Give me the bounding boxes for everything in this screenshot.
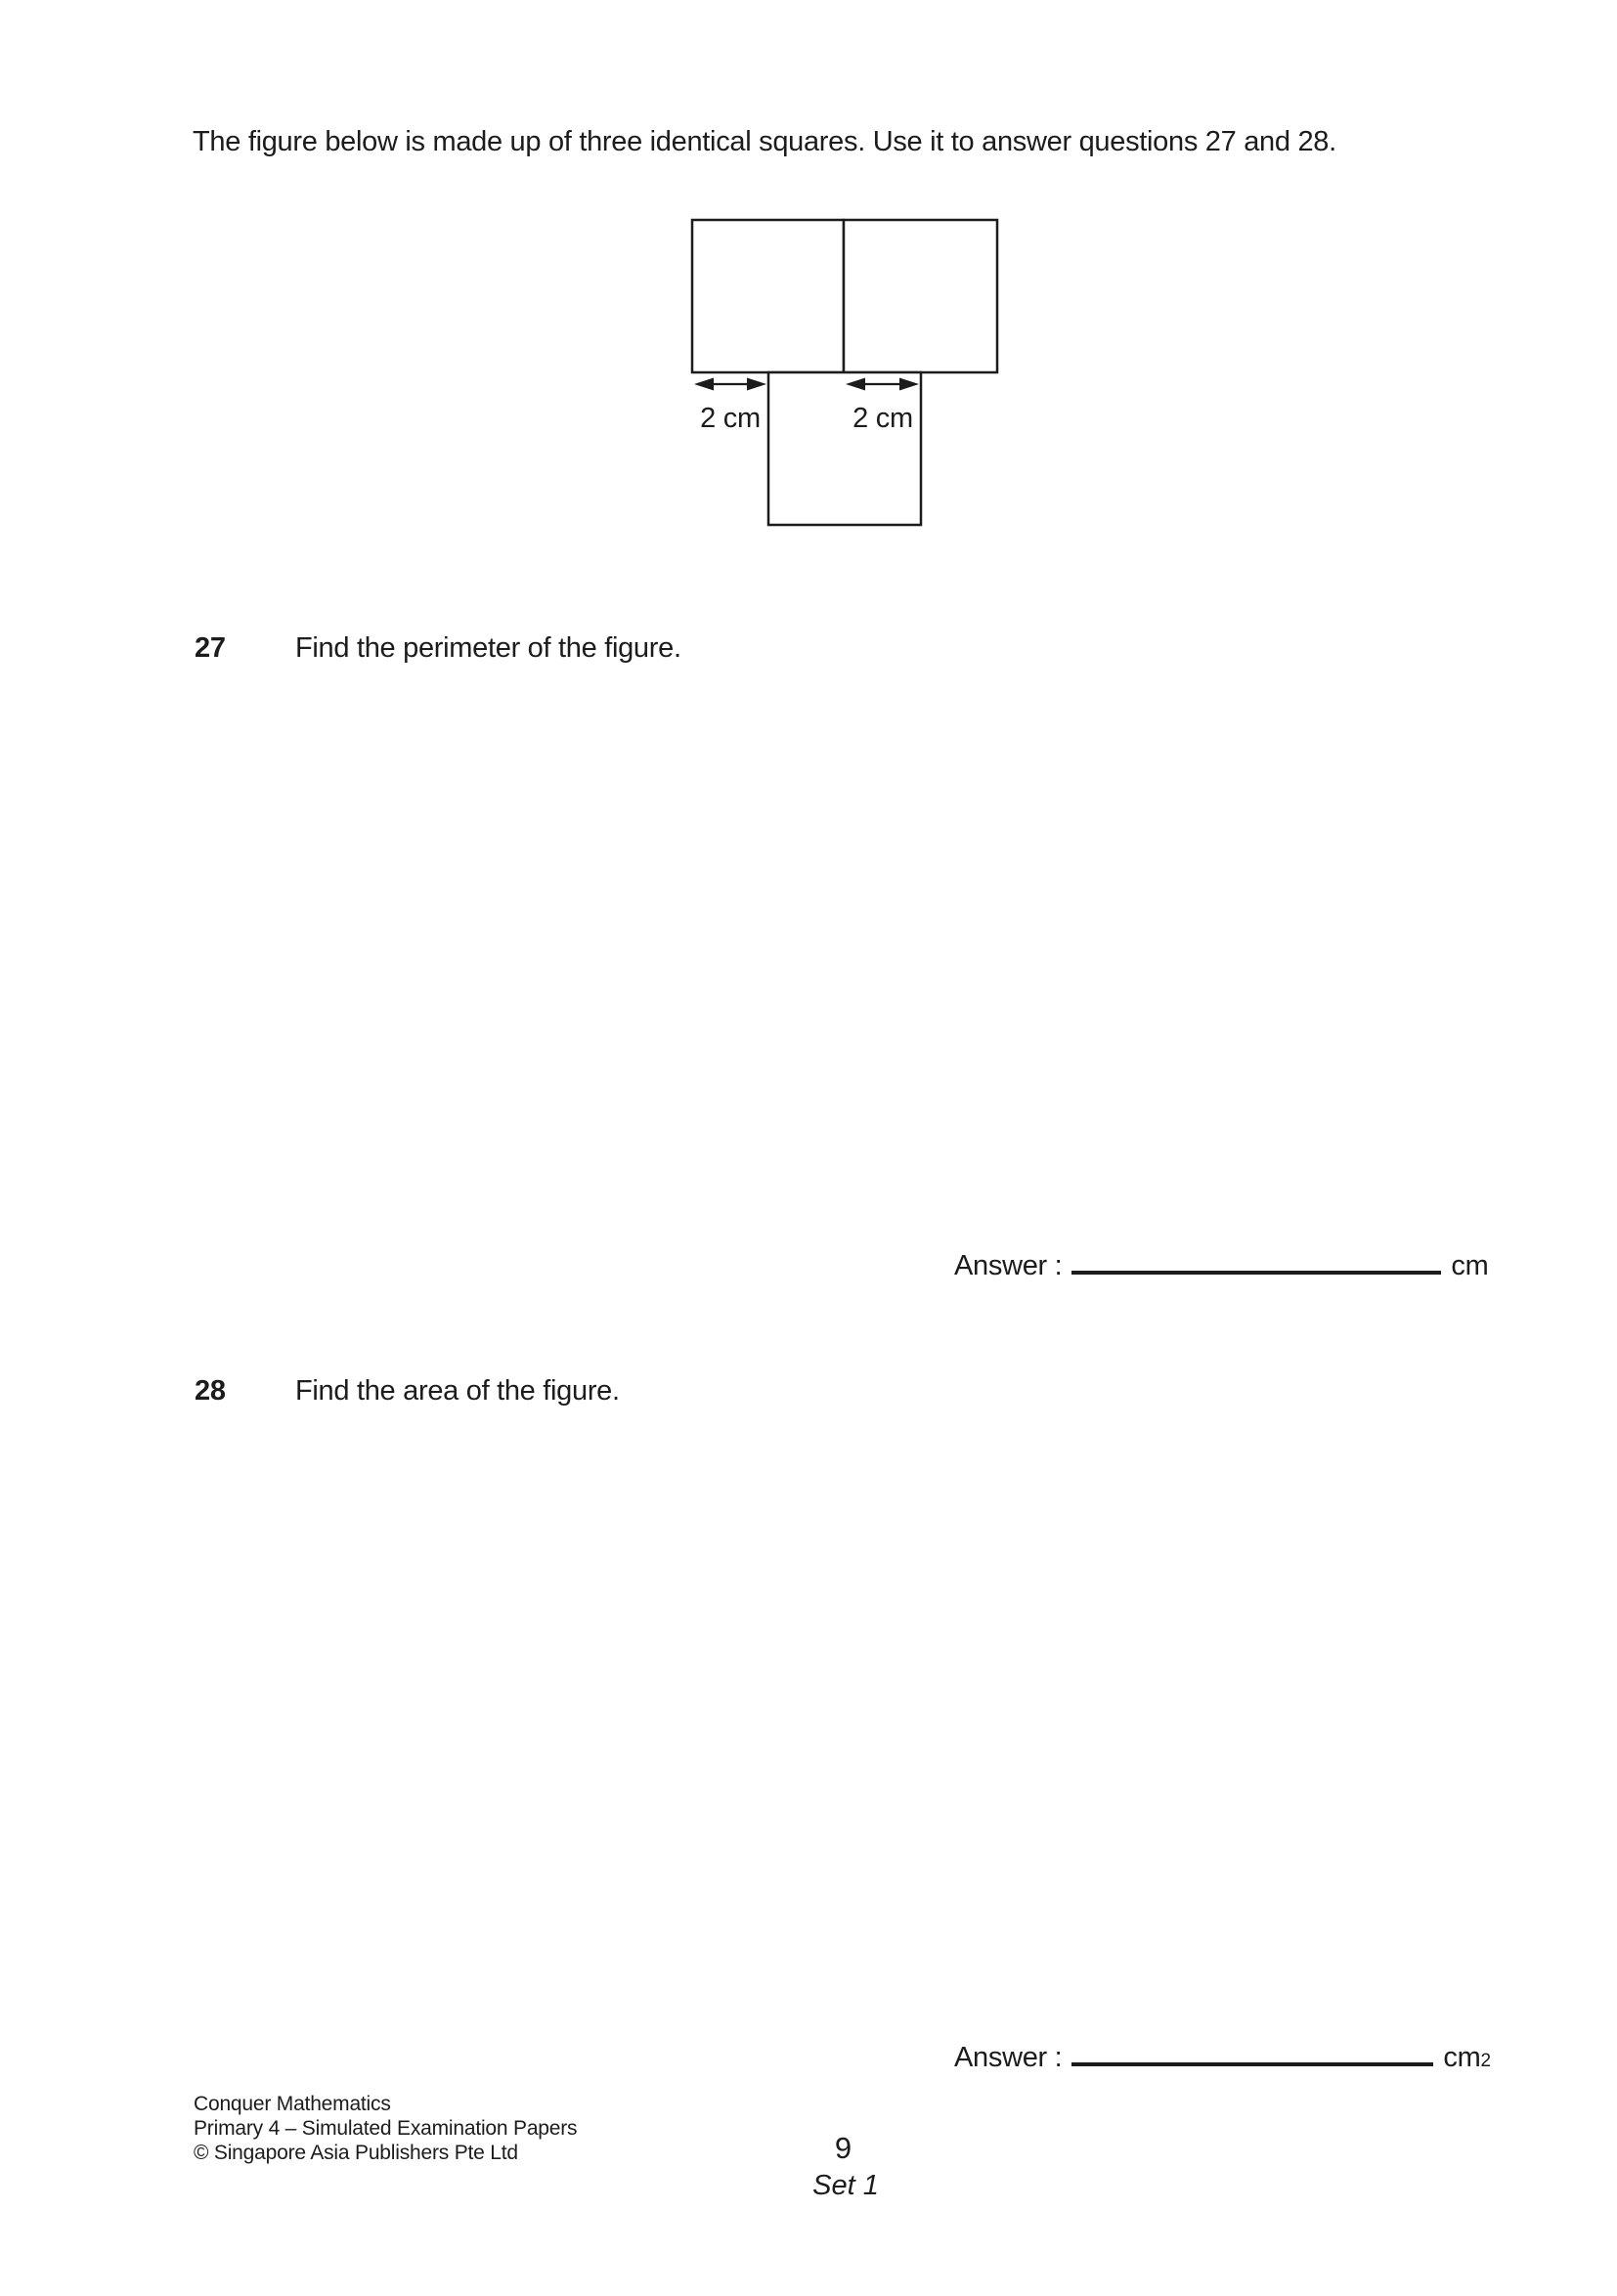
question-27: 27 Find the perimeter of the figure. [195, 631, 681, 665]
answer-blank-line[interactable] [1071, 2062, 1433, 2066]
intro-text: The figure below is made up of three ide… [193, 125, 1336, 158]
answer-unit: cm [1451, 1249, 1488, 1282]
set-label: Set 1 [733, 2172, 958, 2200]
question-text: Find the area of the figure. [295, 1374, 620, 1408]
dimension-label-left: 2 cm [700, 403, 761, 434]
footer-imprint: Conquer Mathematics Primary 4 – Simulate… [194, 2092, 577, 2165]
question-number: 27 [195, 631, 295, 665]
dimension-arrow-left [694, 378, 766, 391]
answer-row-28: Answer : cm2 [954, 2041, 1491, 2078]
page-number: 9 [733, 2133, 953, 2163]
answer-label: Answer : [954, 1249, 1062, 1282]
square-top-left [692, 220, 844, 372]
footer-line: Primary 4 – Simulated Examination Papers [194, 2116, 577, 2141]
footer-line: © Singapore Asia Publishers Pte Ltd [194, 2141, 577, 2165]
square-bottom [768, 372, 921, 525]
answer-blank-line[interactable] [1071, 1271, 1441, 1275]
square-top-right [844, 220, 997, 372]
answer-unit: cm [1443, 2041, 1480, 2074]
answer-label: Answer : [954, 2041, 1062, 2074]
dimension-label-right: 2 cm [852, 403, 913, 434]
footer-line: Conquer Mathematics [194, 2092, 577, 2116]
question-number: 28 [195, 1374, 295, 1408]
exam-page: The figure below is made up of three ide… [0, 0, 1617, 2296]
question-28: 28 Find the area of the figure. [195, 1374, 620, 1408]
answer-row-27: Answer : cm [954, 1249, 1488, 1282]
figure-diagram: 2 cm 2 cm [626, 195, 1075, 557]
answer-unit-superscript: 2 [1480, 2045, 1491, 2078]
question-text: Find the perimeter of the figure. [295, 631, 681, 665]
